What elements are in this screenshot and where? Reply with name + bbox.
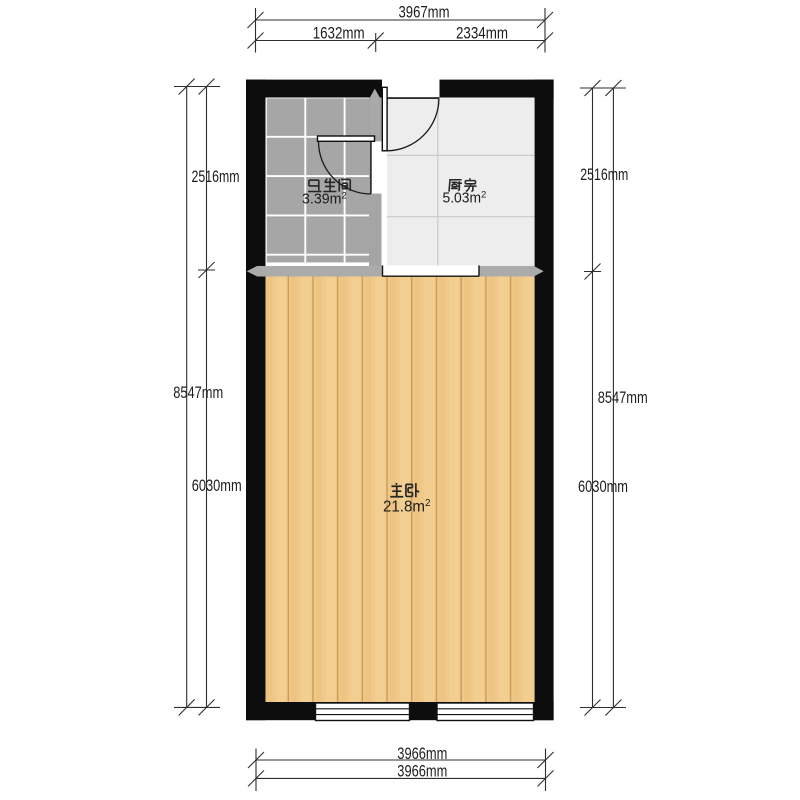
svg-text:8547mm: 8547mm: [598, 388, 648, 407]
svg-text:2: 2: [425, 498, 431, 509]
svg-text:6030mm: 6030mm: [192, 476, 242, 495]
svg-text:2: 2: [342, 191, 347, 202]
svg-text:6030mm: 6030mm: [578, 477, 628, 496]
svg-text:2: 2: [481, 190, 486, 201]
svg-text:1632mm: 1632mm: [313, 23, 365, 42]
svg-text:3.39m: 3.39m: [302, 191, 342, 208]
svg-text:21.8m: 21.8m: [383, 499, 425, 516]
svg-text:2334mm: 2334mm: [456, 23, 508, 42]
svg-text:3967mm: 3967mm: [399, 2, 450, 21]
svg-text:5.03m: 5.03m: [443, 190, 482, 207]
svg-text:3966mm: 3966mm: [397, 762, 447, 781]
svg-text:8547mm: 8547mm: [173, 383, 223, 402]
svg-text:3966mm: 3966mm: [397, 744, 447, 763]
svg-text:2516mm: 2516mm: [580, 165, 628, 184]
svg-text:2516mm: 2516mm: [192, 167, 240, 186]
